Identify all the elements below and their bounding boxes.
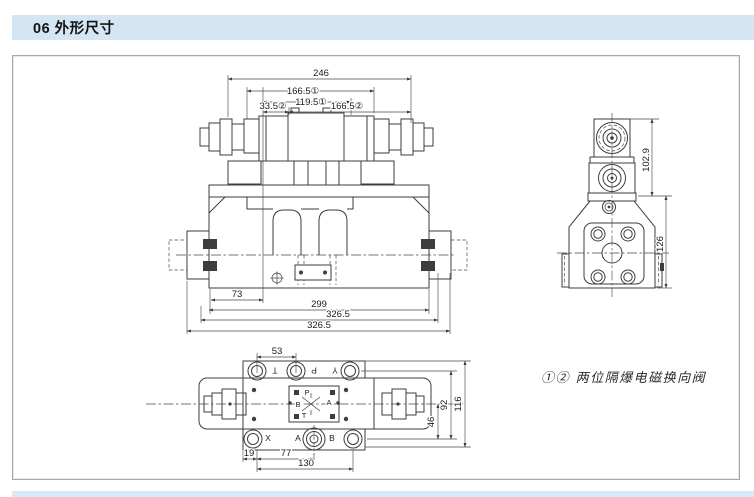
front-view-dimensions-bottom: 73 299 326.5 326.5 [187,273,450,334]
pilot-valve-body [259,108,374,185]
spool-tube-profile-right [319,210,347,255]
section-title: 06 外形尺寸 [12,17,115,38]
dim-92: 92 [439,400,450,411]
top-port-flange [243,361,365,380]
port-label-b: B [329,433,335,443]
dim-326-5-a: 326.5 [326,309,350,320]
next-section-bar-edge [12,491,754,497]
dim-126: 126 [655,236,666,252]
port-label-a: A [295,433,301,443]
cable-gland-right [374,119,433,155]
block-label-t: T [302,411,307,420]
dim-166-5-top: 166.5① [287,86,320,97]
dim-73: 73 [232,289,243,300]
bottom-port-flange [243,428,365,450]
dim-246: 246 [313,68,329,79]
dim-166-5-bottom: 166.5② [331,101,364,112]
dim-102-9: 102.9 [641,148,652,172]
port-label-x: X [265,433,271,443]
dim-53: 53 [272,346,283,357]
port-label-t-top: T [272,366,277,376]
dimension-drawing-panel: 246 166.5① 119.5① 33.5② 166.5② 73 299 32… [12,55,740,480]
dim-130: 130 [298,458,314,469]
block-label-p: P [304,388,309,397]
main-valve-body [169,185,467,288]
dim-116: 116 [453,396,464,411]
outline-dimension-drawing: 246 166.5① 119.5① 33.5② 166.5② 73 299 32… [13,56,739,479]
valve-body-end-view [562,193,664,288]
pilot-valve-assembly [200,108,433,185]
block-label-a: A [326,398,331,407]
solenoid-coil-right [344,116,394,184]
front-view: 246 166.5① 119.5① 33.5② 166.5② 73 299 32… [169,68,467,334]
dim-46: 46 [426,417,437,428]
section-header-bar: 06 外形尺寸 [12,15,754,40]
port-label-y-top: Y [332,366,338,376]
bottom-view: T P Y X A B P B A T 53 19 77 130 [146,346,471,472]
dim-299: 299 [311,299,327,310]
cable-gland-left [200,119,259,155]
port-label-p-top: P [311,366,317,376]
dim-119-5: 119.5① [295,97,327,108]
dim-19: 19 [244,448,255,459]
block-label-b: B [295,400,300,409]
drawing-footnote: ①② 两位隔爆电磁换向阀 [541,370,707,386]
top-mounting-plate [209,185,429,197]
position-mark-icon [271,272,284,285]
spool-tube-profile-left [273,210,301,255]
dim-77: 77 [281,448,292,459]
side-view: 102.9 126 [557,113,672,297]
dim-326-5-b: 326.5 [307,320,331,331]
dim-33-5: 33.5② [259,101,286,112]
mounting-bolts [591,227,635,284]
